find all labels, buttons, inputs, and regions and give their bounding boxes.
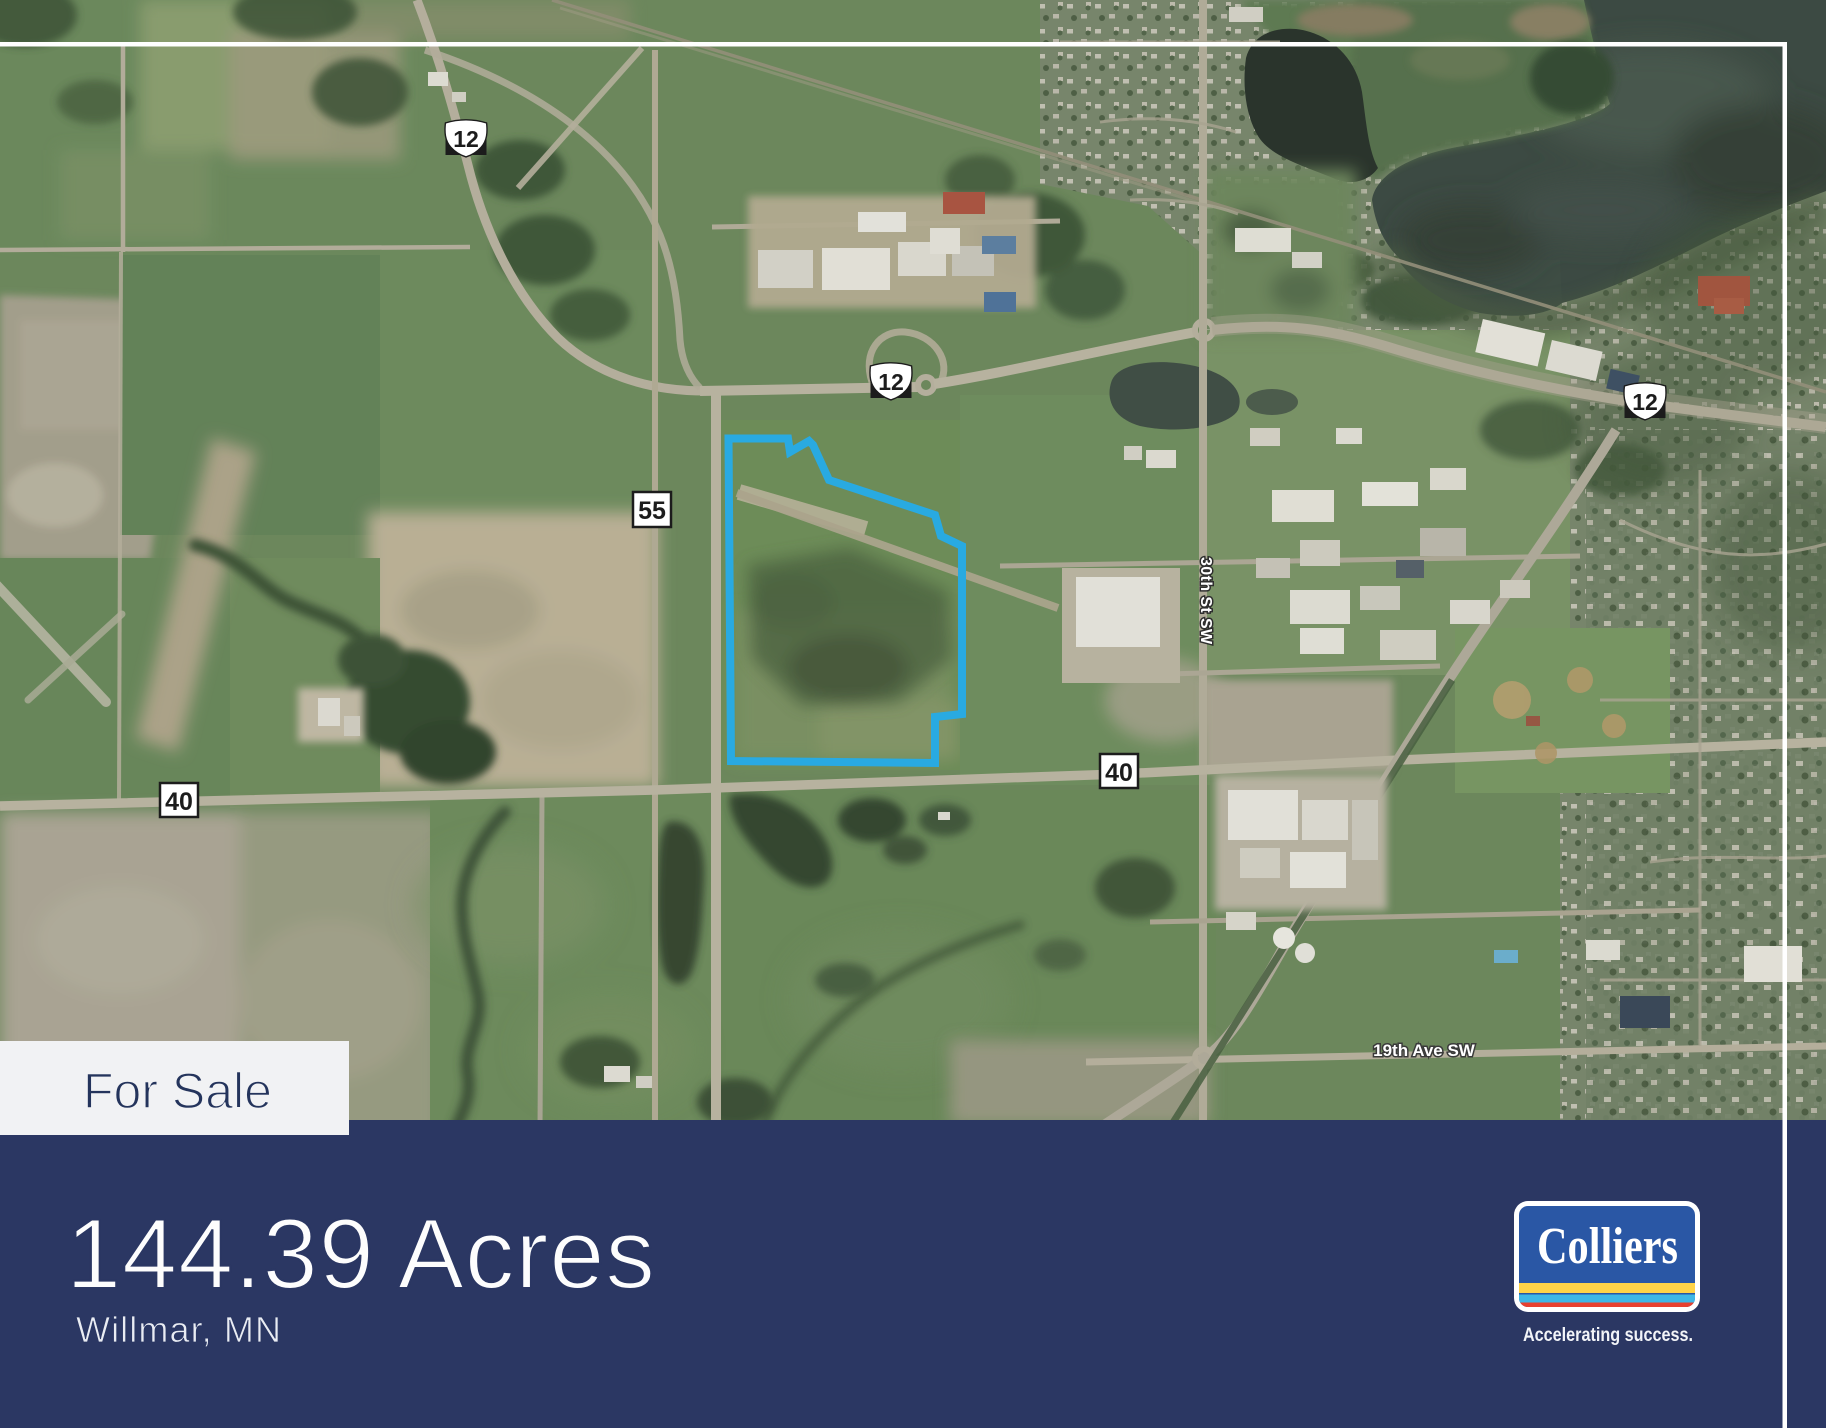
svg-text:40: 40: [165, 788, 193, 816]
svg-text:For Sale: For Sale: [83, 1063, 272, 1119]
svg-text:40: 40: [1105, 759, 1133, 787]
svg-text:55: 55: [638, 497, 666, 525]
svg-text:Accelerating success.: Accelerating success.: [1523, 1325, 1693, 1346]
svg-text:12: 12: [878, 369, 904, 395]
svg-text:12: 12: [1632, 389, 1658, 415]
svg-text:19th Ave SW: 19th Ave SW: [1373, 1041, 1476, 1060]
svg-text:Willmar, MN: Willmar, MN: [76, 1309, 282, 1350]
svg-text:30th St SW: 30th St SW: [1197, 557, 1214, 645]
svg-text:144.39 Acres: 144.39 Acres: [66, 1198, 656, 1309]
svg-text:12: 12: [453, 126, 479, 152]
svg-text:Colliers: Colliers: [1537, 1218, 1678, 1275]
